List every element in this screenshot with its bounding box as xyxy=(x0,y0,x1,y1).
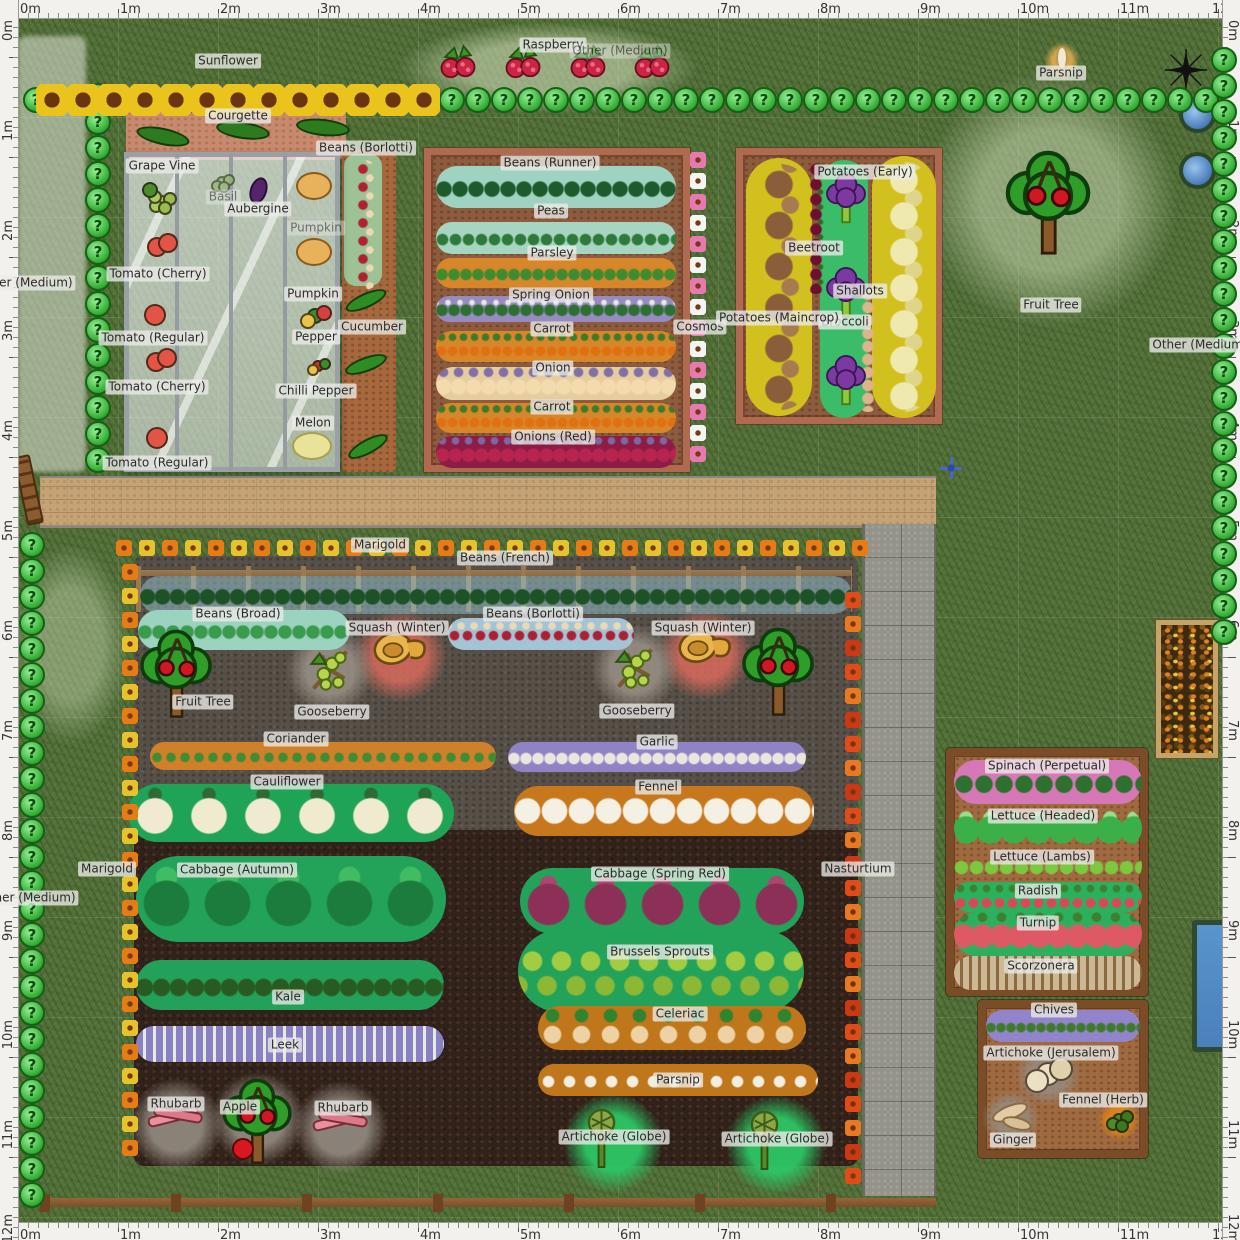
label-leek: Leek xyxy=(268,1038,302,1053)
cosmos-flower[interactable] xyxy=(690,362,706,378)
ruler-mark: 7m xyxy=(720,2,741,17)
other-medium-plant[interactable]: ? xyxy=(85,395,111,421)
marigold-flower[interactable] xyxy=(122,1116,138,1132)
row-potatoes-maincrop[interactable] xyxy=(748,164,810,410)
marigold-flower[interactable] xyxy=(829,540,845,556)
marigold-flower[interactable] xyxy=(122,1092,138,1108)
ruler-mark: 2m xyxy=(1,220,16,241)
sprinkler[interactable] xyxy=(940,457,962,479)
label-pumpkin: Pumpkin xyxy=(284,287,342,302)
marigold-flower[interactable] xyxy=(122,660,138,676)
other-medium-plant[interactable]: ? xyxy=(1211,229,1237,255)
ruler-mark: 0m xyxy=(1,20,16,41)
nasturtium-flower[interactable] xyxy=(845,1120,861,1136)
nasturtium-flower[interactable] xyxy=(845,1024,861,1040)
other-medium-plant[interactable]: ? xyxy=(85,421,111,447)
other-medium-plant[interactable]: ? xyxy=(19,766,45,792)
other-medium-plant[interactable]: ? xyxy=(19,1078,45,1104)
sunflower-plant[interactable] xyxy=(315,84,347,116)
label-marigold: Marigold xyxy=(351,538,409,553)
apple-tree[interactable] xyxy=(219,1078,295,1169)
ruler-mark: 11m xyxy=(1,1120,16,1149)
label-beetroot: Beetroot xyxy=(785,241,843,256)
tomato-regular-plant[interactable] xyxy=(135,416,179,460)
marigold-flower[interactable] xyxy=(208,540,224,556)
label-grape-vine: Grape Vine xyxy=(126,159,199,174)
ruler-mark: 3m xyxy=(320,2,341,17)
label-nasturtium: Nasturtium xyxy=(821,862,894,877)
marigold-flower[interactable] xyxy=(122,948,138,964)
nasturtium-flower[interactable] xyxy=(845,1168,861,1184)
marigold-flower[interactable] xyxy=(185,540,201,556)
other-medium-plant[interactable]: ? xyxy=(85,135,111,161)
other-medium-plant[interactable]: ? xyxy=(19,1026,45,1052)
marigold-flower[interactable] xyxy=(122,780,138,796)
other-medium-plant[interactable]: ? xyxy=(1211,151,1237,177)
broccoli-plant[interactable] xyxy=(823,355,869,412)
other-medium-plant[interactable]: ? xyxy=(621,87,647,113)
nasturtium-flower[interactable] xyxy=(845,1096,861,1112)
other-medium-plant[interactable]: ? xyxy=(1211,359,1237,385)
nasturtium-flower[interactable] xyxy=(845,1072,861,1088)
other-medium-plant[interactable]: ? xyxy=(85,291,111,317)
other-medium-plant[interactable]: ? xyxy=(829,87,855,113)
label-beans-borlotti: Beans (Borlotti) xyxy=(316,141,416,156)
tomato-cherry-plant[interactable] xyxy=(137,227,177,267)
nasturtium-flower[interactable] xyxy=(845,832,861,848)
label-turnip: Turnip xyxy=(1017,916,1059,931)
marigold-flower[interactable] xyxy=(122,972,138,988)
water-barrel[interactable] xyxy=(1179,152,1216,189)
label-scorzonera: Scorzonera xyxy=(1004,959,1077,974)
other-medium-plant[interactable]: ? xyxy=(959,87,985,113)
marigold-flower[interactable] xyxy=(760,540,776,556)
other-medium-plant[interactable]: ? xyxy=(85,213,111,239)
other-medium-plant[interactable]: ? xyxy=(19,1052,45,1078)
label-pumpkin: Pumpkin xyxy=(287,221,345,236)
ruler-mark: 11m xyxy=(1120,2,1149,17)
other-medium-plant[interactable]: ? xyxy=(439,87,465,113)
cosmos-flower[interactable] xyxy=(690,215,706,231)
ruler-mark: 7m xyxy=(720,1228,741,1240)
cosmos-flower[interactable] xyxy=(690,383,706,399)
label-potatoes-early: Potatoes (Early) xyxy=(814,165,915,180)
label-tomato-regular: Tomato (Regular) xyxy=(103,456,212,471)
ruler-left: 0m1m2m3m4m5m6m7m8m9m10m11m12m xyxy=(0,0,19,1240)
other-medium-plant[interactable]: ? xyxy=(517,87,543,113)
ruler-mark: 10m xyxy=(1,1020,16,1049)
marigold-flower[interactable] xyxy=(122,876,138,892)
ruler-mark: 4m xyxy=(420,2,441,17)
label-parsley: Parsley xyxy=(527,246,576,261)
label-beans-borlotti: Beans (Borlotti) xyxy=(483,607,583,622)
other-medium-plant[interactable]: ? xyxy=(855,87,881,113)
label-chives: Chives xyxy=(1031,1003,1077,1018)
other-medium-plant[interactable]: ? xyxy=(19,922,45,948)
label-brussels-sprouts: Brussels Sprouts xyxy=(607,945,713,960)
path-horizontal[interactable] xyxy=(40,476,936,528)
sunflower-plant[interactable] xyxy=(160,84,192,116)
sunflower-plant[interactable] xyxy=(98,84,130,116)
grape-vine-leaf[interactable] xyxy=(134,174,166,206)
sunflower-plant[interactable] xyxy=(36,84,68,116)
other-medium-plant[interactable]: ? xyxy=(881,87,907,113)
other-medium-plant[interactable]: ? xyxy=(1211,541,1237,567)
other-medium-plant[interactable]: ? xyxy=(751,87,777,113)
other-medium-plant[interactable]: ? xyxy=(19,1104,45,1130)
marigold-flower[interactable] xyxy=(737,540,753,556)
leaf-bin[interactable] xyxy=(1156,620,1218,758)
other-medium-plant[interactable]: ? xyxy=(1211,489,1237,515)
other-medium-plant[interactable]: ? xyxy=(19,1156,45,1182)
label-onions-red: Onions (Red) xyxy=(511,430,595,445)
label-garlic: Garlic xyxy=(637,735,678,750)
other-medium-plant[interactable]: ? xyxy=(19,740,45,766)
ruler-mark: 6m xyxy=(1,620,16,641)
other-medium-plant[interactable]: ? xyxy=(1211,463,1237,489)
ruler-mark: 7m xyxy=(1225,720,1240,741)
other-medium-plant[interactable]: ? xyxy=(699,87,725,113)
row-beans-borlotti-column[interactable] xyxy=(346,160,380,290)
ruler-mark: 5m xyxy=(1,520,16,541)
other-medium-plant[interactable]: ? xyxy=(85,161,111,187)
nasturtium-flower[interactable] xyxy=(845,928,861,944)
other-medium-plant[interactable]: ? xyxy=(1211,515,1237,541)
other-medium-plant[interactable]: ? xyxy=(1167,87,1193,113)
label-rhubarb: Rhubarb xyxy=(147,1097,204,1112)
nasturtium-flower[interactable] xyxy=(845,592,861,608)
ruler-mark: 11m xyxy=(1225,1120,1240,1149)
label-fruit-tree: Fruit Tree xyxy=(1020,298,1081,313)
label-artichoke-globe: Artichoke (Globe) xyxy=(559,1130,670,1145)
other-medium-plant[interactable]: ? xyxy=(1211,593,1237,619)
ruler-mark: 5m xyxy=(520,2,541,17)
fruit-tree[interactable] xyxy=(1002,150,1094,260)
ruler-mark: 8m xyxy=(820,2,841,17)
other-medium-plant[interactable]: ? xyxy=(85,239,111,265)
marigold-flower[interactable] xyxy=(438,540,454,556)
other-medium-plant[interactable]: ? xyxy=(1011,87,1037,113)
label-squash-winter: Squash (Winter) xyxy=(652,621,755,636)
tomato-cherry-plant[interactable] xyxy=(136,342,176,382)
nasturtium-flower[interactable] xyxy=(845,616,861,632)
marigold-flower[interactable] xyxy=(122,1068,138,1084)
pepper-plant[interactable] xyxy=(299,300,331,332)
label-cabbage-autumn: Cabbage (Autumn) xyxy=(177,863,297,878)
marigold-flower[interactable] xyxy=(691,540,707,556)
nasturtium-flower[interactable] xyxy=(845,736,861,752)
path-vertical[interactable] xyxy=(862,524,936,1196)
other-medium-plant[interactable]: ? xyxy=(1063,87,1089,113)
ruler-mark: 9m xyxy=(1,920,16,941)
other-medium-plant[interactable]: ? xyxy=(1211,307,1237,333)
label-fennel: Fennel xyxy=(635,780,681,795)
marigold-flower[interactable] xyxy=(783,540,799,556)
sunflower-plant[interactable] xyxy=(129,84,161,116)
other-medium-plant[interactable]: ? xyxy=(19,532,45,558)
label-squash-winter: Squash (Winter) xyxy=(346,621,449,636)
nasturtium-flower[interactable] xyxy=(845,808,861,824)
marigold-flower[interactable] xyxy=(622,540,638,556)
ruler-mark: 6m xyxy=(620,1228,641,1240)
marigold-flower[interactable] xyxy=(645,540,661,556)
ruler-mark: 8m xyxy=(820,1228,841,1240)
row-beans-runner[interactable] xyxy=(436,166,676,208)
ruler-mark: 10m xyxy=(1020,1228,1049,1240)
other-medium-plant[interactable]: ? xyxy=(1211,99,1237,125)
marigold-flower[interactable] xyxy=(116,540,132,556)
marigold-flower[interactable] xyxy=(415,540,431,556)
nasturtium-flower[interactable] xyxy=(845,1000,861,1016)
ruler-top: 0m1m2m3m4m5m6m7m8m9m10m11m12m xyxy=(0,0,1240,19)
marigold-flower[interactable] xyxy=(122,996,138,1012)
other-medium-plant[interactable]: ? xyxy=(1089,87,1115,113)
ruler-mark: 4m xyxy=(1,420,16,441)
label-spinach-perpetual: Spinach (Perpetual) xyxy=(985,759,1109,774)
other-medium-plant[interactable]: ? xyxy=(19,974,45,1000)
row-brussels-sprouts[interactable] xyxy=(518,930,804,1012)
other-medium-plant[interactable]: ? xyxy=(19,662,45,688)
label-celeriac: Celeriac xyxy=(653,1007,708,1022)
apple-fruit[interactable] xyxy=(232,1138,254,1160)
other-medium-plant[interactable]: ? xyxy=(1141,87,1167,113)
marigold-flower[interactable] xyxy=(122,828,138,844)
label-tomato-cherry: Tomato (Cherry) xyxy=(105,380,208,395)
label-other-medium: Other (Medium) xyxy=(569,44,670,59)
other-medium-plant[interactable]: ? xyxy=(803,87,829,113)
label-parsnip: Parsnip xyxy=(653,1073,703,1088)
cosmos-flower[interactable] xyxy=(690,194,706,210)
other-medium-plant[interactable]: ? xyxy=(907,87,933,113)
other-medium-plant[interactable]: ? xyxy=(19,688,45,714)
label-tomato-cherry: Tomato (Cherry) xyxy=(106,267,209,282)
ruler-mark: 3m xyxy=(320,1228,341,1240)
ruler-mark: 10m xyxy=(1225,1020,1240,1049)
marigold-flower[interactable] xyxy=(122,1140,138,1156)
sunflower-plant[interactable] xyxy=(284,84,316,116)
marigold-flower[interactable] xyxy=(139,540,155,556)
gooseberry-bush[interactable] xyxy=(299,637,361,703)
label-pepper: Pepper xyxy=(292,330,340,345)
ruler-mark: 3m xyxy=(1,320,16,341)
sunflower-plant[interactable] xyxy=(67,84,99,116)
marigold-flower[interactable] xyxy=(162,540,178,556)
other-medium-plant[interactable]: ? xyxy=(19,714,45,740)
nasturtium-flower[interactable] xyxy=(845,712,861,728)
raspberry-plant[interactable] xyxy=(436,44,480,85)
cosmos-flower[interactable] xyxy=(690,278,706,294)
label-sunflower: Sunflower xyxy=(195,54,261,69)
ruler-mark: 7m xyxy=(1,720,16,741)
other-medium-plant[interactable]: ? xyxy=(1211,281,1237,307)
other-medium-plant[interactable]: ? xyxy=(19,818,45,844)
other-medium-plant[interactable]: ? xyxy=(647,87,673,113)
other-medium-plant[interactable]: ? xyxy=(543,87,569,113)
fruit-tree[interactable] xyxy=(739,627,817,721)
ruler-mark: 0m xyxy=(1225,20,1240,41)
marigold-flower[interactable] xyxy=(122,1044,138,1060)
other-medium-plant[interactable]: ? xyxy=(985,87,1011,113)
chilli-pepper-plant[interactable] xyxy=(306,354,330,378)
other-medium-plant[interactable]: ? xyxy=(933,87,959,113)
marigold-flower[interactable] xyxy=(122,588,138,604)
cosmos-flower[interactable] xyxy=(690,299,706,315)
sunflower-plant[interactable] xyxy=(346,84,378,116)
other-medium-plant[interactable]: ? xyxy=(85,187,111,213)
other-medium-plant[interactable]: ? xyxy=(1211,255,1237,281)
label-beans-runner: Beans (Runner) xyxy=(501,156,600,171)
other-medium-plant[interactable]: ? xyxy=(1211,47,1237,73)
marigold-flower[interactable] xyxy=(122,684,138,700)
marigold-flower[interactable] xyxy=(122,612,138,628)
marigold-flower[interactable] xyxy=(323,540,339,556)
marigold-flower[interactable] xyxy=(277,540,293,556)
marigold-flower[interactable] xyxy=(122,636,138,652)
marigold-flower[interactable] xyxy=(122,756,138,772)
nasturtium-flower[interactable] xyxy=(845,664,861,680)
marigold-flower[interactable] xyxy=(553,540,569,556)
sunflower-plant[interactable] xyxy=(377,84,409,116)
cosmos-flower[interactable] xyxy=(690,173,706,189)
fennel-herb-plant[interactable] xyxy=(1105,1106,1133,1134)
other-medium-plant[interactable]: ? xyxy=(465,87,491,113)
row-parsley[interactable] xyxy=(436,258,676,288)
ruler-mark: 1m xyxy=(1,120,16,141)
marigold-flower[interactable] xyxy=(122,732,138,748)
melon-fruit[interactable] xyxy=(292,432,332,460)
cosmos-flower[interactable] xyxy=(690,236,706,252)
marigold-flower[interactable] xyxy=(254,540,270,556)
cosmos-flower[interactable] xyxy=(690,404,706,420)
label-rhubarb: Rhubarb xyxy=(314,1101,371,1116)
label-coriander: Coriander xyxy=(264,732,329,747)
ruler-mark: 10m xyxy=(1020,2,1049,17)
marigold-flower[interactable] xyxy=(122,804,138,820)
label-other-medium: Other (Medium) xyxy=(0,891,79,906)
marigold-flower[interactable] xyxy=(122,900,138,916)
other-medium-plant[interactable]: ? xyxy=(725,87,751,113)
cosmos-flower[interactable] xyxy=(690,257,706,273)
ruler-mark: 0m xyxy=(20,2,41,17)
label-beans-broad: Beans (Broad) xyxy=(192,607,283,622)
ruler-mark: 2m xyxy=(220,2,241,17)
ruler-mark: 8m xyxy=(1225,820,1240,841)
marigold-flower[interactable] xyxy=(231,540,247,556)
nasturtium-flower[interactable] xyxy=(845,784,861,800)
other-medium-plant[interactable]: ? xyxy=(19,1130,45,1156)
other-medium-plant[interactable]: ? xyxy=(19,558,45,584)
marigold-flower[interactable] xyxy=(122,924,138,940)
nasturtium-flower[interactable] xyxy=(845,880,861,896)
other-medium-plant[interactable]: ? xyxy=(1211,177,1237,203)
label-chilli-pepper: Chilli Pepper xyxy=(276,384,357,399)
nasturtium-flower[interactable] xyxy=(845,1144,861,1160)
other-medium-plant[interactable]: ? xyxy=(1211,619,1237,645)
nasturtium-flower[interactable] xyxy=(845,904,861,920)
other-medium-plant[interactable]: ? xyxy=(777,87,803,113)
marigold-flower[interactable] xyxy=(668,540,684,556)
fence-bottom[interactable] xyxy=(40,1194,936,1212)
other-medium-plant[interactable]: ? xyxy=(19,610,45,636)
other-medium-plant[interactable]: ? xyxy=(19,844,45,870)
nasturtium-flower[interactable] xyxy=(845,760,861,776)
nasturtium-flower[interactable] xyxy=(845,640,861,656)
other-medium-plant[interactable]: ? xyxy=(1211,567,1237,593)
label-courgette: Courgette xyxy=(205,109,271,124)
label-artichoke-jerusalem: Artichoke (Jerusalem) xyxy=(983,1046,1118,1061)
nasturtium-flower[interactable] xyxy=(845,1048,861,1064)
other-medium-plant[interactable]: ? xyxy=(1037,87,1063,113)
row-cauliflower[interactable] xyxy=(128,784,454,842)
other-medium-plant[interactable]: ? xyxy=(19,1182,45,1208)
pumpkin-fruit[interactable] xyxy=(296,238,332,266)
other-medium-plant[interactable]: ? xyxy=(595,87,621,113)
cosmos-flower[interactable] xyxy=(690,152,706,168)
other-medium-plant[interactable]: ? xyxy=(1115,87,1141,113)
sunflower-plant[interactable] xyxy=(408,84,440,116)
other-medium-plant[interactable]: ? xyxy=(19,948,45,974)
marigold-flower[interactable] xyxy=(122,1020,138,1036)
broccoli-plant[interactable] xyxy=(823,173,869,230)
other-medium-plant[interactable]: ? xyxy=(491,87,517,113)
nasturtium-flower[interactable] xyxy=(845,976,861,992)
marigold-flower[interactable] xyxy=(714,540,730,556)
nasturtium-flower[interactable] xyxy=(845,952,861,968)
cosmos-flower[interactable] xyxy=(690,341,706,357)
ruler-mark: 8m xyxy=(1,820,16,841)
label-radish: Radish xyxy=(1015,884,1061,899)
label-spring-onion: Spring Onion xyxy=(509,288,593,303)
label-gooseberry: Gooseberry xyxy=(294,705,369,720)
label-aubergine: Aubergine xyxy=(224,202,291,217)
other-medium-plant[interactable]: ? xyxy=(1211,437,1237,463)
marigold-flower[interactable] xyxy=(122,708,138,724)
other-medium-plant[interactable]: ? xyxy=(19,636,45,662)
ruler-mark: 9m xyxy=(1225,920,1240,941)
other-medium-plant[interactable]: ? xyxy=(19,792,45,818)
other-medium-plant[interactable]: ? xyxy=(1211,411,1237,437)
other-medium-plant[interactable]: ? xyxy=(1211,125,1237,151)
gooseberry-bush[interactable] xyxy=(604,635,666,701)
ruler-mark: 11m xyxy=(1120,1228,1149,1240)
marigold-flower[interactable] xyxy=(599,540,615,556)
other-medium-plant[interactable]: ? xyxy=(85,343,111,369)
marigold-flower[interactable] xyxy=(852,540,868,556)
marigold-flower[interactable] xyxy=(806,540,822,556)
nasturtium-flower[interactable] xyxy=(845,688,861,704)
other-medium-plant[interactable]: ? xyxy=(569,87,595,113)
other-medium-plant[interactable]: ? xyxy=(19,584,45,610)
other-medium-plant[interactable]: ? xyxy=(19,1000,45,1026)
ruler-mark: 1m xyxy=(120,1228,141,1240)
marigold-flower[interactable] xyxy=(300,540,316,556)
marigold-flower[interactable] xyxy=(122,564,138,580)
other-medium-plant[interactable]: ? xyxy=(1211,73,1237,99)
ruler-mark: 5m xyxy=(520,1228,541,1240)
marigold-flower[interactable] xyxy=(576,540,592,556)
ruler-mark: 9m xyxy=(920,2,941,17)
other-medium-plant[interactable]: ? xyxy=(673,87,699,113)
garden-plan-canvas[interactable]: 0m1m2m3m4m5m6m7m8m9m10m11m12m 0m1m2m3m4m… xyxy=(0,0,1240,1240)
cosmos-flower[interactable] xyxy=(690,446,706,462)
label-carrot: Carrot xyxy=(530,400,573,415)
other-medium-plant[interactable]: ? xyxy=(1211,385,1237,411)
label-fruit-tree: Fruit Tree xyxy=(172,695,233,710)
pumpkin-fruit[interactable] xyxy=(296,172,332,200)
ruler-bottom: 0m1m2m3m4m5m6m7m8m9m10m11m12m xyxy=(0,1222,1240,1240)
other-medium-plant[interactable]: ? xyxy=(1211,203,1237,229)
cosmos-flower[interactable] xyxy=(690,425,706,441)
